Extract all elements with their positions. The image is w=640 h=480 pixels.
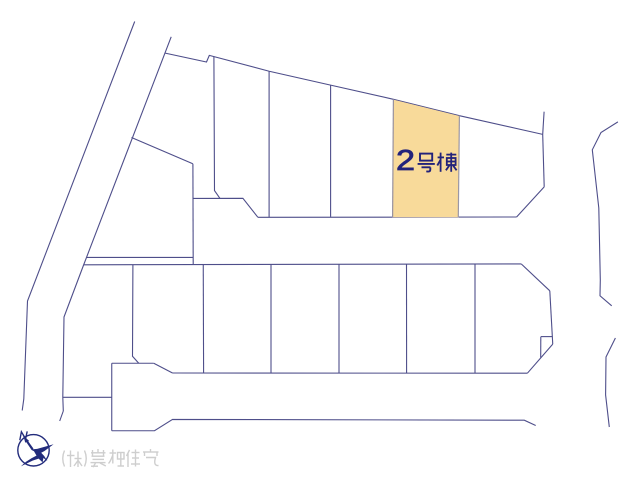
svg-text:2: 2 <box>396 145 415 177</box>
